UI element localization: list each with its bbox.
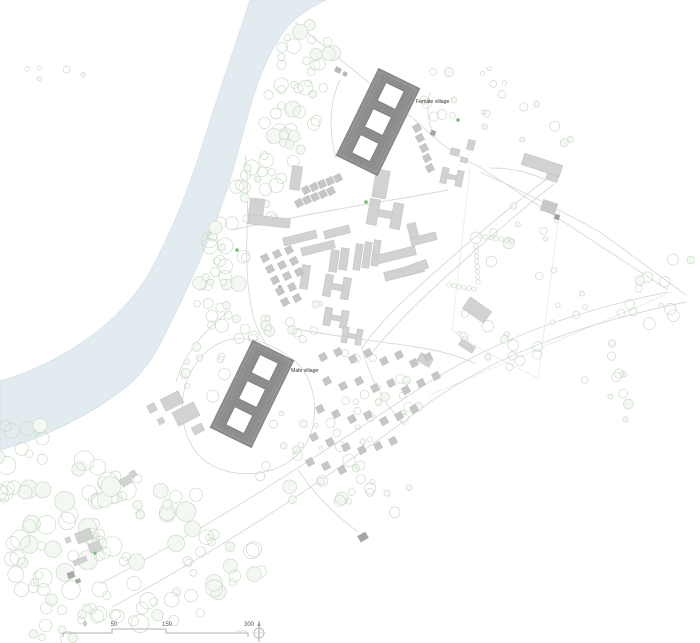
scale-tick-label: 300: [244, 622, 255, 628]
tree: [264, 90, 273, 99]
tree: [40, 602, 52, 614]
tree: [520, 103, 528, 111]
hut-building: [292, 293, 301, 302]
building: [540, 199, 558, 214]
hut-building: [331, 409, 340, 418]
tree: [556, 303, 561, 308]
tree: [367, 437, 372, 442]
tree: [119, 557, 128, 566]
hut-building: [348, 354, 357, 363]
tree: [508, 340, 519, 351]
road-path: [480, 172, 686, 295]
tree: [288, 325, 297, 334]
tree: [540, 227, 547, 234]
scale-bar-line: [63, 629, 248, 637]
building-part: [339, 248, 350, 271]
tree: [196, 355, 202, 361]
building: [157, 417, 165, 425]
tree: [232, 315, 240, 323]
tree: [239, 182, 250, 193]
tree: [176, 502, 196, 522]
building-part: [157, 417, 165, 425]
tree: [231, 276, 247, 292]
building: [334, 66, 342, 73]
tree: [360, 439, 366, 445]
tree: [215, 319, 228, 332]
building-part: [458, 339, 475, 353]
hut-building: [318, 189, 327, 198]
tree: [623, 399, 633, 409]
tree: [430, 68, 437, 75]
tree: [207, 390, 219, 402]
hut-building: [310, 192, 319, 201]
tree: [502, 81, 507, 86]
tree: [257, 167, 267, 177]
hut-building: [302, 195, 311, 204]
tree: [300, 420, 308, 428]
building-part: [376, 246, 417, 264]
tree: [15, 442, 28, 455]
hedge-shrub: [457, 284, 461, 288]
tree: [29, 630, 38, 639]
hut-building: [318, 352, 327, 361]
road-path: [362, 178, 548, 348]
tree: [487, 67, 491, 71]
tree: [303, 57, 311, 65]
building-part: [450, 147, 461, 156]
tree: [381, 392, 390, 401]
tree: [481, 71, 485, 75]
hedge-shrub: [475, 259, 479, 263]
green-accent-dot: [364, 200, 368, 204]
hut-building: [388, 436, 397, 445]
tree: [203, 274, 210, 281]
building: [323, 307, 350, 329]
tree: [403, 377, 411, 385]
tree: [185, 589, 198, 602]
tree: [543, 236, 548, 241]
hedge-shrub: [475, 264, 479, 268]
tree: [333, 429, 341, 437]
hedge-shrub: [476, 280, 480, 284]
tree: [194, 300, 201, 307]
tree: [444, 67, 454, 77]
tree: [284, 34, 291, 41]
hut-building: [337, 465, 346, 474]
tree: [68, 633, 78, 643]
tree: [57, 605, 67, 615]
tree: [164, 592, 179, 607]
tree: [220, 279, 227, 286]
tree: [619, 389, 628, 398]
tree: [299, 336, 306, 343]
building: [366, 198, 404, 230]
hut-building: [401, 385, 410, 394]
tree: [40, 619, 52, 631]
hedge-shrub: [494, 236, 498, 240]
tree: [277, 42, 287, 52]
building-part: [289, 165, 302, 190]
building-part: [191, 423, 204, 435]
tree: [457, 331, 461, 335]
building: [376, 246, 417, 264]
tree: [296, 145, 305, 154]
tree: [35, 482, 51, 498]
tree: [196, 609, 204, 617]
tree: [406, 485, 412, 491]
building: [440, 167, 465, 187]
hut-building: [322, 376, 331, 385]
tree: [92, 582, 107, 597]
hut-building: [275, 286, 284, 295]
site-plan-drawing: Female village Male village 050150300: [0, 0, 700, 643]
tree: [314, 423, 318, 427]
tree: [226, 217, 239, 230]
tree: [168, 535, 185, 552]
hut-building: [354, 376, 363, 385]
tree: [269, 178, 284, 193]
tree: [536, 272, 544, 280]
tree: [39, 634, 46, 641]
tree: [37, 454, 47, 464]
hut-building: [333, 173, 342, 182]
building-part: [430, 130, 436, 136]
tree: [209, 221, 222, 234]
tree: [370, 480, 375, 485]
building: [357, 532, 368, 543]
hut-building: [272, 249, 281, 258]
tree: [550, 121, 560, 131]
tree: [127, 577, 141, 591]
tree: [33, 418, 47, 432]
tree: [560, 139, 568, 147]
tree: [298, 81, 312, 95]
tree: [319, 446, 323, 450]
tree: [206, 310, 218, 322]
tree: [18, 485, 32, 499]
tree: [510, 203, 517, 210]
tree: [210, 267, 219, 276]
tree: [203, 298, 213, 308]
hut-building: [309, 182, 318, 191]
building-part: [283, 230, 318, 246]
tree: [486, 256, 497, 267]
hut-building: [338, 381, 347, 390]
tree: [501, 335, 509, 343]
tree: [307, 68, 315, 76]
tree: [608, 394, 613, 399]
tree: [192, 342, 201, 351]
tree: [162, 499, 172, 509]
tree: [312, 301, 319, 308]
building: [462, 297, 491, 323]
tree: [196, 547, 206, 557]
tree: [291, 81, 298, 88]
tree: [58, 626, 66, 634]
tree: [625, 300, 635, 310]
tree: [270, 420, 278, 428]
tree: [360, 390, 369, 399]
hut-building: [379, 416, 388, 425]
tree: [308, 36, 316, 44]
tree: [635, 285, 642, 292]
tree: [482, 124, 488, 130]
building-part: [331, 283, 343, 291]
building: [460, 157, 468, 164]
hut-building: [415, 133, 424, 142]
scale-tick-label: 0: [83, 622, 87, 628]
hedge-shrub: [447, 283, 451, 287]
tree: [283, 480, 297, 494]
building-part: [334, 66, 342, 73]
tree: [568, 136, 574, 142]
building-part: [301, 240, 336, 256]
building-part: [377, 209, 392, 219]
hut-building: [260, 253, 269, 262]
tree: [498, 91, 506, 99]
building: [342, 71, 347, 76]
tree: [240, 193, 249, 202]
tree: [25, 450, 33, 458]
tree: [63, 66, 70, 73]
tree: [285, 101, 301, 117]
hut-building: [416, 378, 425, 387]
compass-needle-tip: [257, 621, 260, 626]
tree: [612, 372, 621, 381]
tree: [14, 582, 28, 596]
tree: [608, 340, 615, 347]
tree: [617, 309, 625, 317]
tree: [111, 610, 124, 623]
tree: [353, 399, 359, 405]
building: [283, 230, 318, 246]
building: [191, 423, 204, 435]
tree: [150, 598, 158, 606]
tree: [322, 47, 335, 60]
tree: [268, 169, 275, 176]
tree: [280, 442, 287, 449]
road-path: [100, 292, 668, 584]
tree: [277, 60, 286, 69]
field-boundary-line: [452, 330, 538, 378]
hut-building: [325, 176, 334, 185]
building: [65, 537, 72, 544]
tree: [342, 397, 350, 405]
tree: [289, 496, 297, 504]
tree: [451, 97, 457, 103]
male-village-building: [210, 340, 294, 447]
tree: [262, 462, 271, 471]
tree: [189, 488, 202, 501]
tree: [45, 541, 62, 558]
hut-building: [289, 256, 298, 265]
tree: [259, 117, 270, 128]
tree: [285, 140, 294, 149]
tree: [133, 500, 143, 510]
tree: [277, 102, 285, 110]
female-village-building: [336, 68, 420, 175]
hut-building: [422, 153, 431, 162]
site-plan: Female village Male village 050150300: [0, 0, 700, 643]
tree: [247, 567, 262, 582]
tree: [223, 301, 231, 309]
tree: [623, 417, 629, 423]
building: [430, 130, 436, 136]
tree: [185, 521, 201, 537]
hut-building: [425, 163, 434, 172]
building: [147, 403, 158, 414]
building-part: [462, 297, 491, 323]
tree: [375, 399, 382, 406]
tree: [687, 256, 695, 264]
hedge-shrub: [472, 287, 476, 291]
building-part: [540, 199, 558, 214]
tree: [153, 483, 168, 498]
building: [322, 274, 351, 300]
tree: [92, 607, 107, 622]
green-accent-dot: [456, 118, 460, 122]
tree: [152, 609, 164, 621]
tree: [190, 569, 197, 576]
tree: [534, 101, 540, 107]
tree: [308, 118, 320, 130]
building-part: [342, 71, 347, 76]
building-part: [347, 333, 356, 339]
building: [329, 250, 340, 273]
tree: [579, 291, 584, 296]
hut-building: [301, 185, 310, 194]
building-part: [466, 139, 475, 150]
road-path: [298, 470, 358, 532]
hut-building: [321, 461, 330, 470]
hut-building: [294, 198, 303, 207]
tree: [450, 112, 456, 118]
building: [450, 147, 461, 156]
tree: [46, 594, 58, 606]
hedge-shrub: [499, 237, 503, 241]
tree: [293, 24, 308, 39]
hut-building: [341, 442, 350, 451]
tree: [520, 137, 525, 142]
hedge-shrub: [483, 235, 487, 239]
hut-building: [431, 371, 440, 380]
tree: [309, 90, 317, 98]
tree: [38, 584, 50, 596]
tree: [643, 318, 655, 330]
building: [407, 218, 438, 246]
tree: [659, 303, 664, 308]
male-village-label: Male village: [291, 368, 319, 374]
tree: [101, 477, 121, 497]
tree: [319, 83, 328, 92]
tree: [23, 515, 40, 532]
road-path: [331, 80, 340, 158]
tree: [668, 310, 680, 322]
hut-building: [315, 404, 324, 413]
hedge-shrub: [474, 254, 478, 258]
scale-tick-label: 50: [111, 622, 118, 628]
building-part: [357, 532, 368, 543]
hedge-shrub: [467, 286, 471, 290]
building-part: [248, 214, 291, 228]
tree: [298, 442, 304, 448]
scale-bar: 050150300: [63, 622, 255, 637]
tree: [35, 571, 43, 579]
hedge-shrub: [476, 275, 480, 279]
building-part: [75, 578, 81, 583]
hut-building: [277, 260, 286, 269]
tree: [55, 491, 75, 511]
building: [458, 339, 475, 353]
tree: [225, 542, 235, 552]
hut-building: [305, 457, 314, 466]
female-village-label: Female village: [416, 99, 450, 105]
tree: [326, 418, 335, 427]
tree: [310, 327, 318, 335]
tree: [323, 37, 331, 45]
building: [289, 165, 302, 190]
tree: [515, 222, 520, 227]
hut-building: [386, 378, 395, 387]
tree: [271, 108, 282, 119]
hedge-shrub: [474, 244, 478, 248]
building: [339, 248, 350, 271]
tree: [81, 73, 86, 78]
tree: [184, 359, 190, 365]
tree: [131, 615, 149, 633]
tree: [219, 368, 231, 380]
tree: [223, 559, 237, 573]
building-part: [329, 250, 340, 273]
tree: [21, 536, 39, 554]
building: [466, 139, 475, 150]
tree: [0, 450, 5, 464]
hut-building: [394, 350, 403, 359]
tree: [635, 276, 645, 286]
hut-building: [333, 347, 342, 356]
building-part: [147, 403, 158, 414]
building-part: [323, 225, 350, 239]
tree: [172, 588, 180, 596]
scale-tick-label: 150: [162, 622, 173, 628]
hut-building: [287, 282, 296, 291]
tree: [128, 554, 144, 570]
tree: [244, 164, 251, 171]
tree: [583, 305, 588, 310]
hut-building: [284, 245, 293, 254]
tree: [240, 324, 250, 334]
tree: [485, 354, 491, 360]
tree: [667, 254, 678, 265]
building-part: [460, 157, 468, 164]
building: [341, 326, 363, 345]
tree: [279, 411, 284, 416]
hedge-shrub: [452, 284, 456, 288]
tree: [582, 377, 589, 384]
tree: [25, 67, 30, 72]
building: [75, 578, 81, 583]
hut-building: [265, 264, 274, 273]
tree: [17, 558, 28, 569]
hedge-shrub: [462, 285, 466, 289]
tree: [389, 507, 400, 518]
tree: [266, 325, 272, 331]
hut-building: [282, 271, 291, 280]
building-part: [447, 174, 457, 180]
tree: [219, 244, 226, 251]
tree: [38, 65, 42, 69]
tree: [259, 153, 273, 167]
